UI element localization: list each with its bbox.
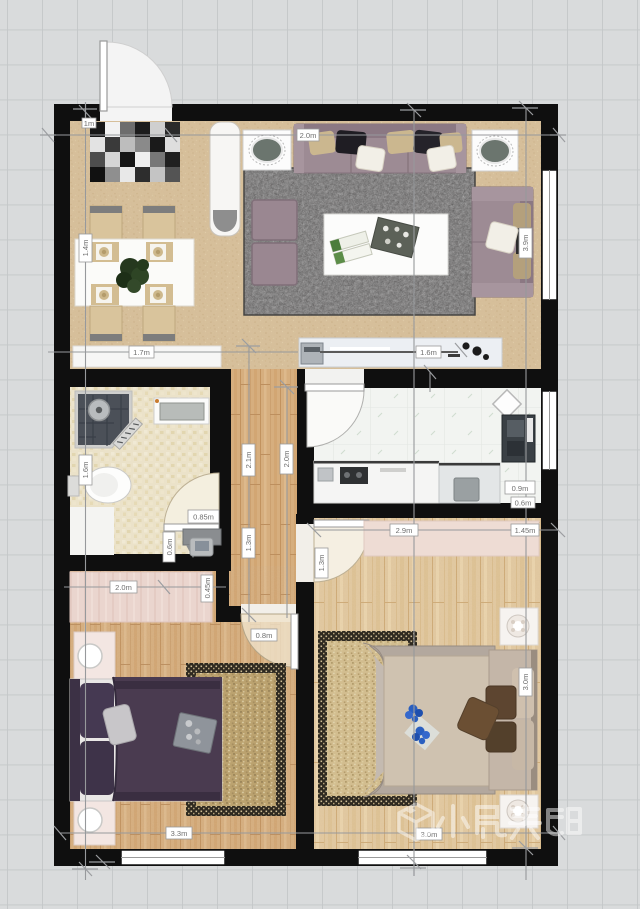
svg-text:0.45m: 0.45m: [203, 578, 212, 599]
svg-text:3.9m: 3.9m: [521, 235, 530, 252]
svg-text:1.3m: 1.3m: [244, 535, 253, 552]
svg-text:0.6m: 0.6m: [515, 499, 532, 508]
svg-text:2.0m: 2.0m: [115, 583, 132, 592]
svg-text:2.0m: 2.0m: [282, 451, 291, 468]
svg-text:0.85m: 0.85m: [193, 513, 214, 522]
svg-text:1.4m: 1.4m: [81, 240, 90, 257]
svg-text:3.0m: 3.0m: [521, 674, 530, 691]
svg-text:2.1m: 2.1m: [244, 452, 253, 469]
svg-text:1m: 1m: [84, 119, 94, 128]
svg-text:1.6m: 1.6m: [81, 462, 90, 479]
svg-text:3.3m: 3.3m: [171, 829, 188, 838]
svg-text:1.3m: 1.3m: [317, 555, 326, 572]
svg-text:1.6m: 1.6m: [420, 348, 437, 357]
svg-text:0.6m: 0.6m: [165, 539, 174, 556]
svg-text:1.7m: 1.7m: [133, 348, 150, 357]
svg-text:2.9m: 2.9m: [396, 526, 413, 535]
svg-text:0.8m: 0.8m: [256, 631, 273, 640]
svg-text:2.0m: 2.0m: [300, 131, 317, 140]
svg-text:0.9m: 0.9m: [512, 484, 529, 493]
svg-text:1.45m: 1.45m: [515, 526, 536, 535]
